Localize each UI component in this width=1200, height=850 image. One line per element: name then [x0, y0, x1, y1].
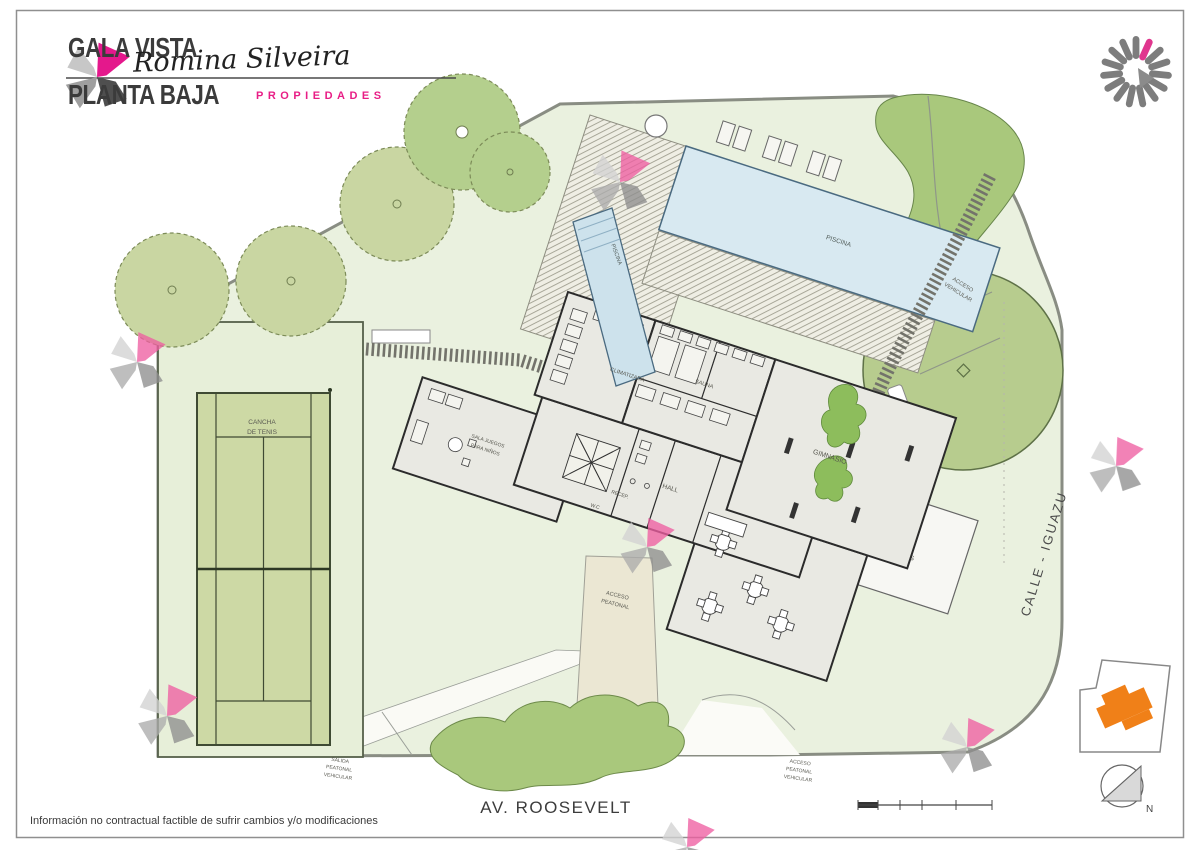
- watermark-pinwheel: [661, 818, 715, 850]
- compass: N: [1101, 765, 1153, 815]
- scale-bar: [858, 800, 992, 810]
- label-cancha-1: CANCHA: [248, 419, 276, 426]
- key-plan: [1080, 660, 1170, 752]
- watermark-pinwheel: [1090, 437, 1144, 492]
- brand-subtitle: PROPIEDADES: [256, 90, 386, 102]
- page-title-line2: PLANTA BAJA: [68, 81, 257, 109]
- salida-line3: VEHICULAR: [323, 772, 353, 782]
- salida-line1: SALIDA: [331, 757, 350, 766]
- street-label-roosevelt: AV. ROOSEVELT: [480, 798, 631, 817]
- disclaimer-text: Información no contractual factible de s…: [30, 815, 378, 827]
- title-text-2: PLANTA BAJA: [68, 81, 219, 109]
- acceso-pv-line3: VEHICULAR: [783, 774, 813, 784]
- compass-n-label: N: [1146, 804, 1153, 815]
- burst-logo: [1100, 36, 1172, 108]
- site-plan-canvas: PATIO INGLES: [0, 0, 1200, 850]
- small-tree: [645, 115, 667, 137]
- label-acceso-pv: ACCESO PEATONAL VEHICULAR: [783, 758, 815, 784]
- planter-pad: [372, 330, 430, 343]
- tennis-court: [158, 322, 363, 757]
- label-salida: SALIDA PEATONAL VEHICULAR: [323, 756, 355, 782]
- label-cancha-2: DE TENIS: [247, 429, 278, 436]
